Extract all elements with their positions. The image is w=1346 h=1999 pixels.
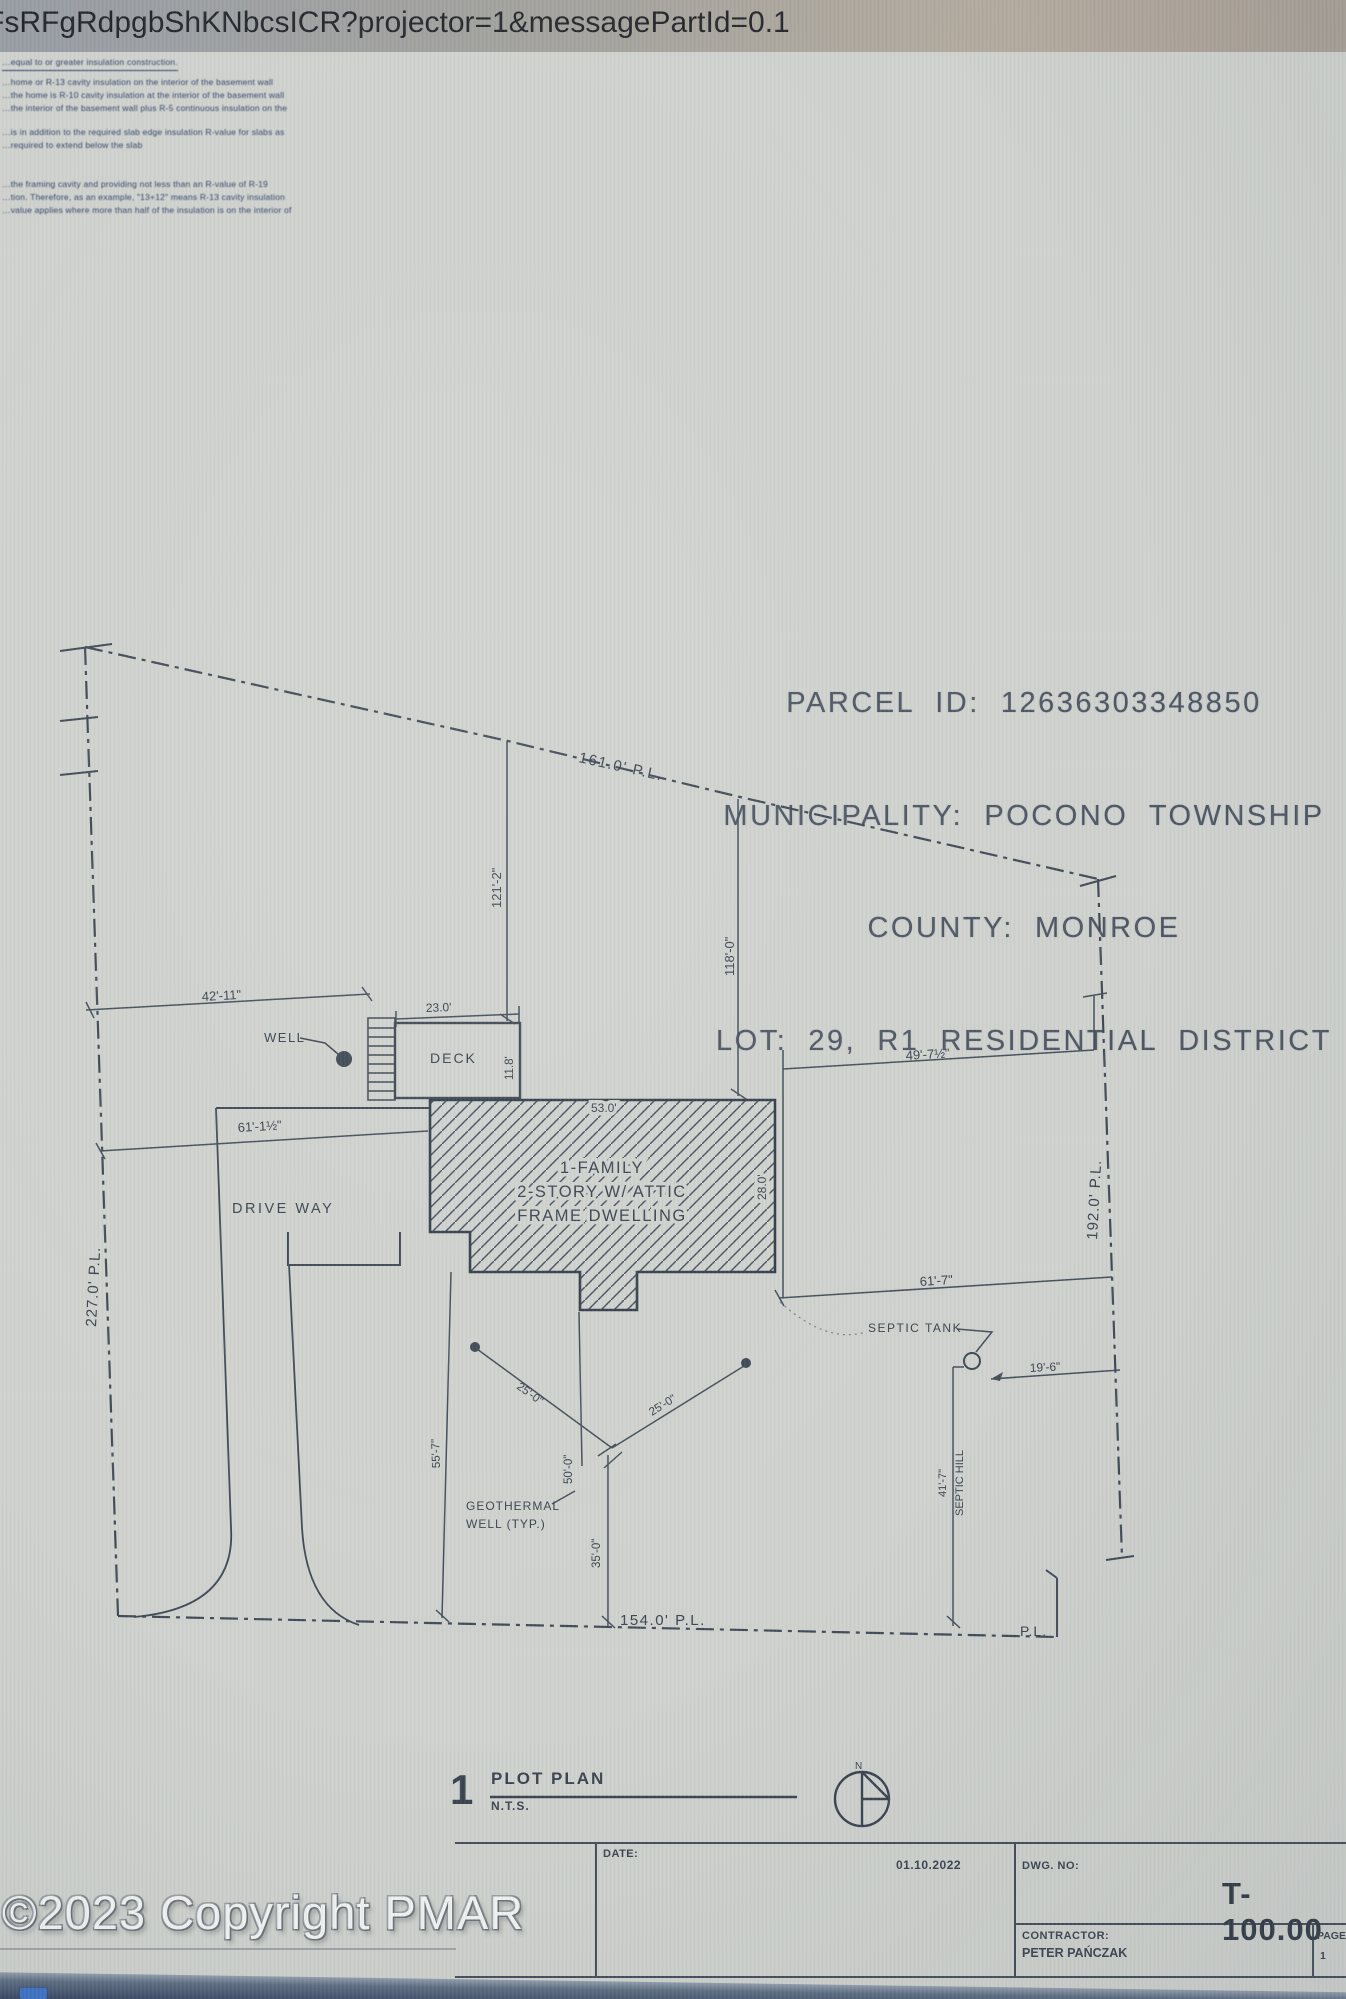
contractor-label: CONTRACTOR: (1022, 1930, 1109, 1942)
dim-25-0-a: 25'-0" (514, 1381, 545, 1408)
geothermal-label-1: GEOTHERMAL (466, 1499, 560, 1513)
sheet-edge-line (0, 1948, 456, 1950)
septic-hill-label: SEPTIC HILL (954, 1450, 966, 1516)
dwelling-label-2: 2-STORY W/ ATTIC (517, 1183, 686, 1201)
dim-61-7: 61'-7" (919, 1272, 953, 1289)
dwelling-label-1: 1-FAMILY (560, 1159, 644, 1177)
north-arrow-icon (835, 1772, 889, 1826)
well-label: WELL (264, 1030, 305, 1045)
driveway-outline (134, 1108, 359, 1625)
plot-plan-drawing: 161.0' P.L. 42'-11" WELL 23.0' DECK 11.8… (0, 0, 1346, 1999)
dim-49-7: 49'-7½" (905, 1045, 950, 1063)
north-label: N (855, 1761, 862, 1772)
boundary-dim-161: 161.0' P.L. (577, 749, 664, 784)
dim-28-0: 28.0' (755, 1174, 769, 1200)
dim-55-7: 55'-7" (430, 1439, 443, 1469)
dwelling-footprint (430, 1100, 775, 1310)
septic-pipe-line (780, 1302, 866, 1335)
septic-tank-label: SEPTIC TANK (868, 1321, 962, 1335)
dim-25-0-b: 25'-0" (647, 1393, 678, 1419)
dwelling-label-3: FRAME DWELLING (517, 1207, 687, 1225)
driveway-label: DRIVE WAY (232, 1201, 334, 1217)
boundary-dim-192: 192.0' P.L. (1084, 1159, 1105, 1240)
photographed-screen: FsRFgRdpgbShKNbcsICR?projector=1&message… (0, 0, 1346, 1999)
dim-53-0: 53.0' (591, 1101, 617, 1115)
contractor-name: PETER PAŃCZAK (1022, 1946, 1127, 1960)
plot-plan-scale: N.T.S. (491, 1799, 530, 1813)
geothermal-well-symbols (470, 1342, 751, 1368)
plot-plan-title: PLOT PLAN (491, 1769, 605, 1789)
detail-number: 1 (450, 1766, 473, 1814)
page-label: PAGE (1317, 1930, 1346, 1942)
dim-arrowhead (991, 1372, 1003, 1381)
dim-121-2: 121'-2" (489, 867, 504, 908)
dwg-no-label: DWG. NO: (1022, 1860, 1079, 1872)
dim-42-11: 42'-11" (201, 987, 241, 1004)
titleblock-divider (1014, 1842, 1016, 1978)
titleblock-border (455, 1976, 1346, 1978)
dim-118-0: 118'-0" (722, 936, 737, 976)
date-value: 01.10.2022 (896, 1858, 961, 1872)
titleblock-border (455, 1842, 1346, 1844)
deck-label: DECK (430, 1050, 477, 1066)
date-label: DATE: (603, 1848, 638, 1860)
page-value: 1 (1320, 1950, 1326, 1962)
taskbar-icon (20, 1988, 47, 1999)
dim-41-7: 41'-7" (937, 1469, 949, 1497)
dim-35-0: 35'-0" (591, 1539, 603, 1568)
boundary-dim-154: 154.0' P.L. (620, 1612, 706, 1629)
dim-19-6: 19'-6" (1029, 1359, 1060, 1375)
deck-stairs (368, 1018, 395, 1100)
dim-23-0: 23.0' (426, 1000, 452, 1015)
boundary-dim-227: 227.0' P.L. (83, 1246, 104, 1327)
titleblock-divider (595, 1842, 597, 1978)
copyright-watermark: ©2023 Copyright PMAR (2, 1885, 524, 1940)
dim-11-8: 11.8' (504, 1056, 516, 1080)
pl-corner-label: P.L. (1020, 1623, 1047, 1639)
septic-tank-symbol (964, 1353, 980, 1369)
well-symbol (300, 1038, 352, 1067)
dim-50-0: 50'-0" (563, 1455, 575, 1484)
dim-61-1: 61'-1½" (237, 1117, 282, 1135)
geothermal-label-2: WELL (TYP.) (466, 1517, 546, 1531)
